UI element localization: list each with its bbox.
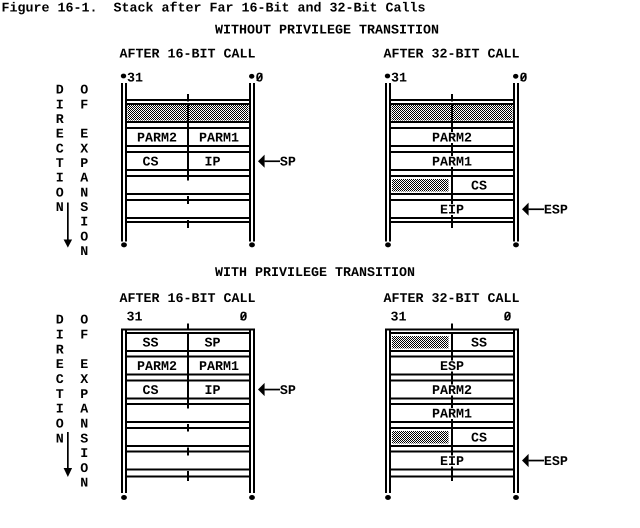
svg-text:31: 31 [127, 72, 143, 87]
svg-text:ESP: ESP [544, 455, 568, 470]
svg-text:F: F [80, 98, 88, 113]
svg-text:I: I [80, 216, 88, 231]
svg-text:I: I [56, 329, 64, 344]
svg-text:I: I [80, 447, 88, 462]
svg-text:31: 31 [391, 72, 407, 87]
svg-text:SP: SP [205, 337, 221, 352]
svg-text:D: D [56, 84, 64, 99]
svg-text:A: A [80, 172, 88, 187]
svg-text:PARM1: PARM1 [199, 132, 239, 147]
svg-text:PARM2: PARM2 [137, 132, 177, 147]
svg-text:F: F [80, 329, 88, 344]
svg-text:Figure 16-1. Stack after Far: Figure 16-1. Stack after Far 16-Bit and … [2, 2, 426, 17]
svg-text:CS: CS [471, 432, 487, 447]
svg-text:O: O [80, 230, 88, 245]
svg-text:R: R [56, 343, 64, 358]
svg-text:S: S [80, 201, 88, 216]
svg-text:I: I [56, 98, 64, 113]
svg-text:SP: SP [280, 384, 296, 399]
svg-text:N: N [80, 186, 88, 201]
svg-text:AFTER 16-BIT CALL: AFTER 16-BIT CALL [120, 48, 256, 63]
svg-text:31: 31 [127, 311, 143, 326]
svg-text:C: C [56, 373, 64, 388]
svg-text:CS: CS [143, 156, 159, 171]
svg-text:X: X [80, 373, 88, 388]
svg-text:IP: IP [205, 156, 221, 171]
svg-text:O: O [56, 417, 64, 432]
svg-text:A: A [80, 403, 88, 418]
svg-text:SS: SS [471, 337, 487, 352]
svg-text:N: N [56, 201, 64, 216]
svg-text:CS: CS [143, 384, 159, 399]
svg-text:E: E [80, 128, 88, 143]
svg-text:S: S [80, 432, 88, 447]
svg-text:CS: CS [471, 180, 487, 195]
svg-text:X: X [80, 142, 88, 157]
svg-text:O: O [56, 186, 64, 201]
svg-text:O: O [80, 314, 88, 329]
svg-text:P: P [80, 157, 88, 172]
svg-text:PARM2: PARM2 [137, 360, 177, 375]
svg-text:E: E [56, 358, 64, 373]
svg-text:N: N [56, 432, 64, 447]
svg-text:I: I [56, 172, 64, 187]
svg-text:AFTER 32-BIT CALL: AFTER 32-BIT CALL [384, 48, 520, 63]
svg-text:E: E [56, 128, 64, 143]
svg-text:R: R [56, 113, 64, 128]
svg-text:C: C [56, 142, 64, 157]
svg-text:ESP: ESP [544, 204, 568, 219]
svg-text:T: T [56, 157, 64, 172]
svg-text:D: D [56, 314, 64, 329]
svg-text:I: I [56, 403, 64, 418]
svg-text:P: P [80, 388, 88, 403]
svg-text:N: N [80, 245, 88, 260]
svg-text:SP: SP [280, 156, 296, 171]
svg-text:31: 31 [391, 311, 407, 326]
svg-text:O: O [80, 84, 88, 99]
svg-text:IP: IP [205, 384, 221, 399]
svg-text:O: O [80, 462, 88, 477]
svg-text:WITHOUT PRIVILEGE TRANSITION: WITHOUT PRIVILEGE TRANSITION [215, 24, 439, 39]
svg-text:T: T [56, 388, 64, 403]
svg-text:N: N [80, 477, 88, 492]
svg-text:AFTER 16-BIT CALL: AFTER 16-BIT CALL [120, 292, 256, 307]
svg-text:WITH PRIVILEGE TRANSITION: WITH PRIVILEGE TRANSITION [215, 266, 415, 281]
svg-text:AFTER 32-BIT CALL: AFTER 32-BIT CALL [384, 292, 520, 307]
svg-text:N: N [80, 417, 88, 432]
svg-text:PARM1: PARM1 [199, 360, 239, 375]
svg-text:SS: SS [143, 337, 159, 352]
svg-text:E: E [80, 358, 88, 373]
